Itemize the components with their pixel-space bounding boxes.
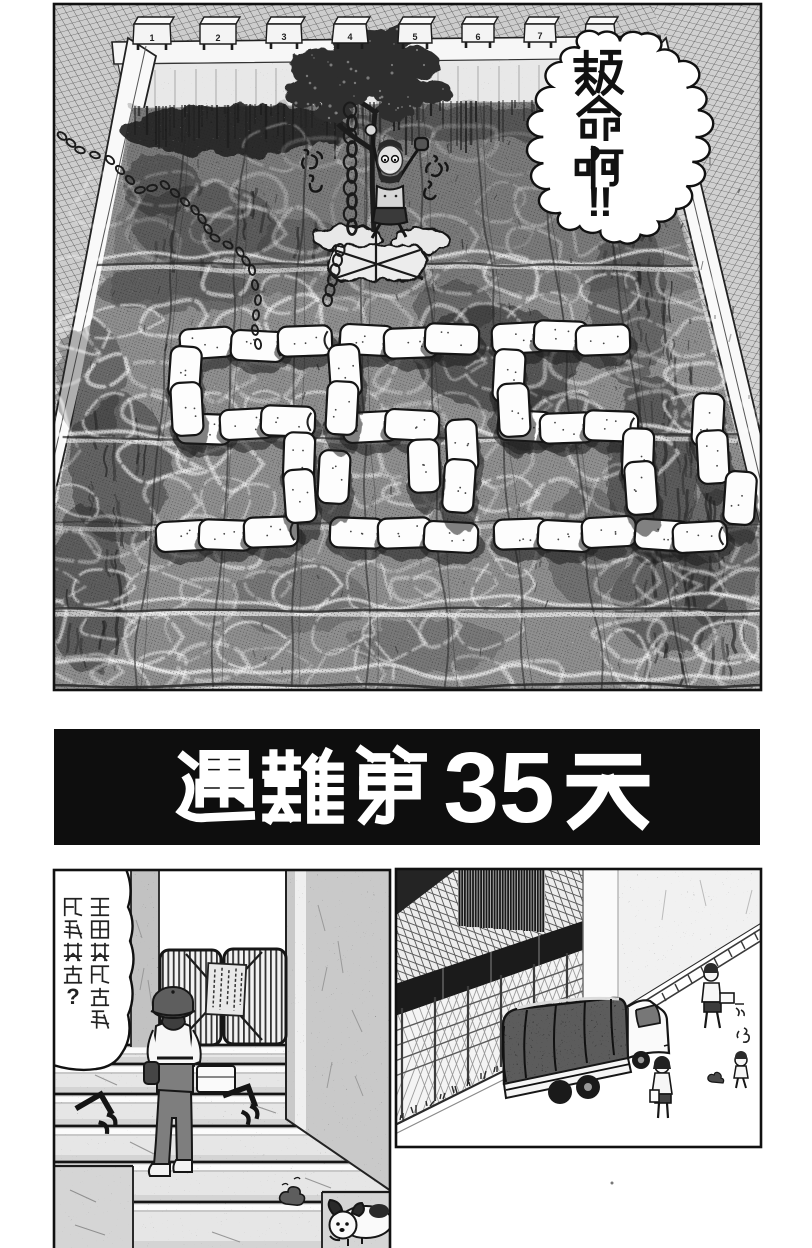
svg-text:?: ? xyxy=(66,984,79,1009)
svg-text:3: 3 xyxy=(281,32,286,42)
svg-text:4: 4 xyxy=(347,32,352,42)
svg-text:6: 6 xyxy=(475,32,480,42)
svg-text:1: 1 xyxy=(149,33,154,43)
svg-text:!!: !! xyxy=(587,178,611,225)
svg-text:35: 35 xyxy=(443,732,554,844)
svg-text:7: 7 xyxy=(537,31,542,41)
svg-text:5: 5 xyxy=(412,32,417,42)
svg-text:2: 2 xyxy=(215,33,220,43)
